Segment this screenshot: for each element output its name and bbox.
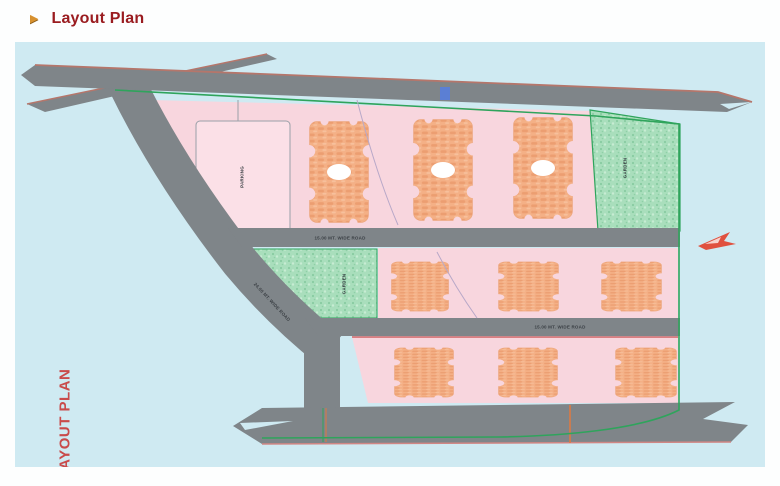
layout-plan-watermark: LAYOUT PLAN [57,369,74,467]
parking-label: PARKING [240,166,245,188]
garden-left-label: GARDEN [342,274,347,295]
buildings-row-2 [385,259,668,313]
section-header: ▶ Layout Plan [30,7,144,31]
garden-right-label: GARDEN [623,158,628,179]
page-title: Layout Plan [51,10,144,28]
internal-road-1 [228,228,680,247]
road2-label: 15.00 MT. WIDE ROAD [534,325,585,330]
road1-label: 15.00 MT. WIDE ROAD [314,236,365,241]
bullet-arrow-icon: ▶ [30,14,38,25]
entrance-gate-marker [440,87,450,100]
north-arrow-icon [698,232,736,250]
page: { "header": { "bullet_icon": "▶", "title… [0,0,780,486]
site-plan-graphic [15,42,765,467]
garden-right-area [590,110,680,231]
buildings-row-3 [388,345,684,399]
internal-road-2 [305,318,680,336]
layout-plan-image: PARKING GARDEN GARDEN 15.00 MT. WIDE ROA… [15,42,765,467]
buildings-row-1 [303,113,579,227]
